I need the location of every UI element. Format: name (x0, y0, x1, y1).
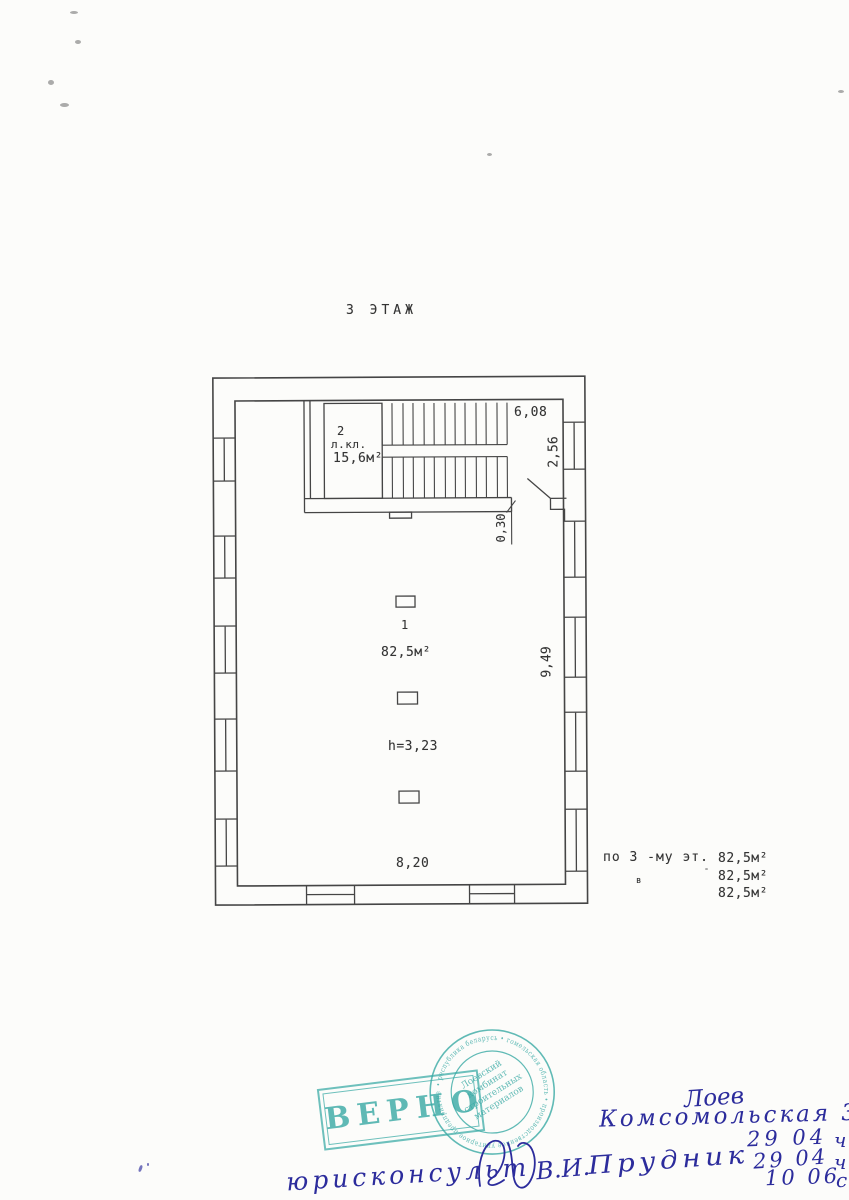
scanned-floor-plan-page: 3 ЭТАЖ (0, 0, 849, 1200)
signature-flourish (0, 0, 849, 1200)
